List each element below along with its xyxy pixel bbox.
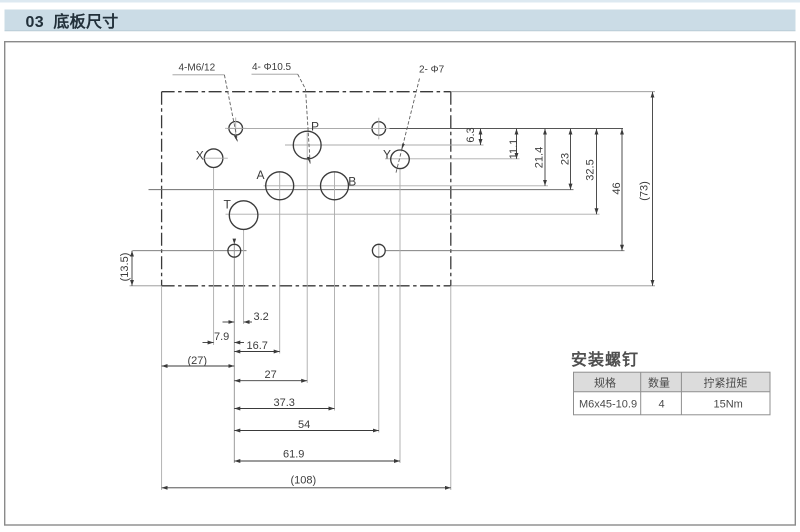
svg-text:(27): (27) xyxy=(188,355,208,367)
svg-text:X: X xyxy=(196,149,204,163)
svg-text:拧紧扭矩: 拧紧扭矩 xyxy=(704,376,748,390)
svg-text:3.2: 3.2 xyxy=(254,311,269,323)
svg-text:4: 4 xyxy=(659,399,665,411)
svg-text:32.5: 32.5 xyxy=(585,159,597,180)
svg-text:4- Φ10.5: 4- Φ10.5 xyxy=(252,62,292,73)
svg-text:规格: 规格 xyxy=(594,376,616,390)
svg-text:23: 23 xyxy=(560,153,572,165)
svg-text:11.1: 11.1 xyxy=(508,139,520,160)
svg-text:B: B xyxy=(348,175,356,189)
svg-text:21.4: 21.4 xyxy=(534,147,546,168)
svg-text:03 底板尺寸: 03 底板尺寸 xyxy=(26,12,119,31)
svg-text:6.3: 6.3 xyxy=(465,127,477,142)
svg-text:61.9: 61.9 xyxy=(283,449,304,461)
svg-text:46: 46 xyxy=(611,182,623,194)
svg-text:15Nm: 15Nm xyxy=(714,399,743,411)
svg-text:54: 54 xyxy=(298,419,310,431)
svg-text:T: T xyxy=(224,198,232,212)
svg-text:M6x45-10.9: M6x45-10.9 xyxy=(579,399,637,411)
svg-text:P: P xyxy=(311,120,319,134)
svg-text:A: A xyxy=(257,168,265,182)
svg-text:37.3: 37.3 xyxy=(274,397,295,409)
svg-text:(13.5): (13.5) xyxy=(119,253,131,282)
svg-text:16.7: 16.7 xyxy=(247,340,268,352)
svg-text:7.9: 7.9 xyxy=(214,331,229,343)
svg-text:数量: 数量 xyxy=(648,377,670,390)
svg-text:安装螺钉: 安装螺钉 xyxy=(571,350,639,369)
svg-text:Y: Y xyxy=(383,148,391,162)
svg-text:(73): (73) xyxy=(639,181,651,201)
svg-text:27: 27 xyxy=(265,369,277,381)
svg-text:2- Φ7: 2- Φ7 xyxy=(419,65,445,76)
svg-text:4-M6/12: 4-M6/12 xyxy=(179,63,216,74)
svg-text:(108): (108) xyxy=(291,475,317,487)
